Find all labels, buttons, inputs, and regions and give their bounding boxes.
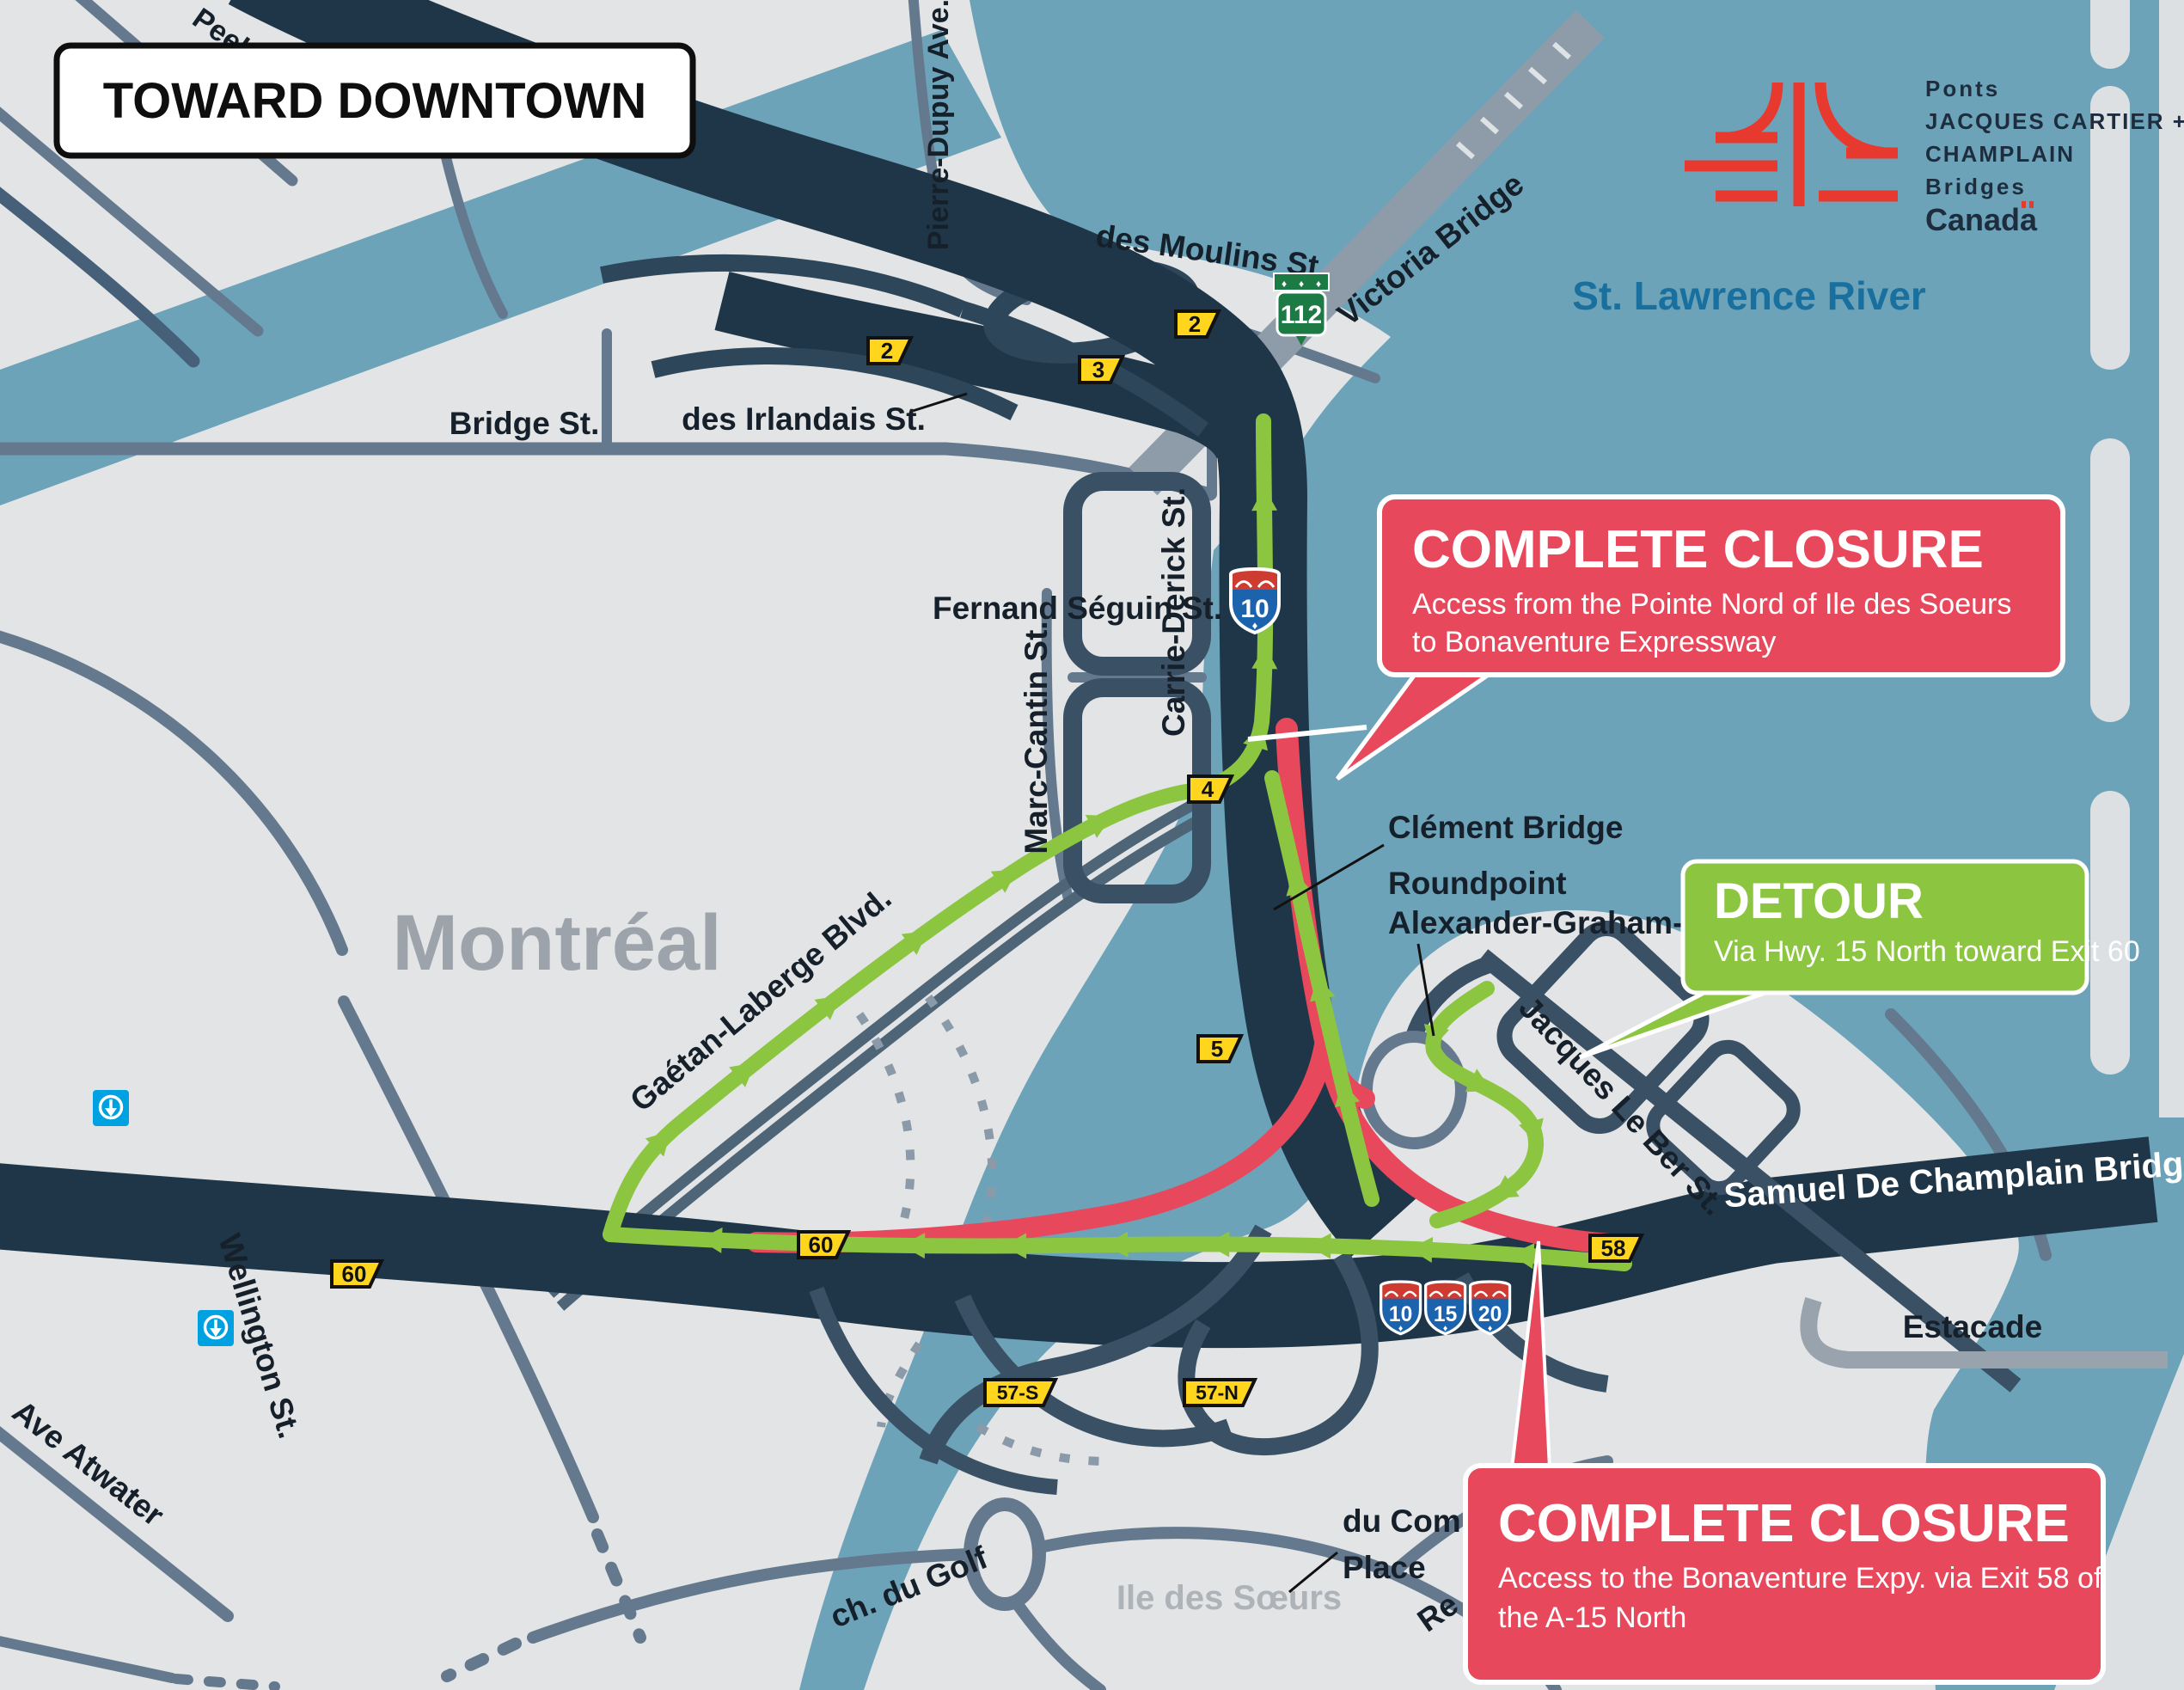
svg-text:to Bonaventure Expressway: to Bonaventure Expressway [1412, 626, 1776, 658]
label-river: St. Lawrence River [1572, 273, 1926, 318]
map-stage: Peel St. Pierre-Dupuy Ave. des Moulins S… [0, 0, 2184, 1690]
label-roundpoint-1: Roundpoint [1388, 866, 1567, 901]
metro-icon [198, 1310, 234, 1346]
shield-a10: 10 ♦ [1380, 1282, 1422, 1334]
svg-text:the A-15 North: the A-15 North [1498, 1601, 1686, 1634]
shield-a15: 15 ♦ [1424, 1282, 1466, 1334]
svg-text:Access from the Pointe Nord of: Access from the Pointe Nord of Ile des S… [1412, 588, 2011, 621]
seaway-pier [2090, 0, 2130, 69]
svg-text:3: 3 [1092, 357, 1104, 383]
seaway-dike-strip [2159, 0, 2184, 1117]
metro-icon [93, 1090, 129, 1126]
label-bridge-st: Bridge St. [450, 406, 600, 441]
svg-text:2: 2 [1189, 311, 1201, 337]
shield-a10-top: 10 ♦ [1229, 569, 1281, 633]
road-atwater [0, 1420, 228, 1616]
svg-text:Access to the Bonaventure Expy: Access to the Bonaventure Expy. via Exit… [1498, 1562, 2102, 1595]
banner-toward-downtown: TOWARD DOWNTOWN [57, 46, 693, 156]
label-carrie-derick: Carrie-Derick St. [1156, 487, 1191, 737]
svg-text:DETOUR: DETOUR [1714, 873, 1924, 929]
road [0, 185, 193, 361]
seaway-pier [2090, 791, 2130, 1075]
svg-text:♦: ♦ [1282, 278, 1287, 290]
logo-bridges: Bridges [1925, 174, 2027, 199]
svg-text:57-S: 57-S [997, 1381, 1039, 1404]
svg-text:♦: ♦ [1299, 278, 1304, 290]
road [0, 1638, 172, 1678]
label-island: Ile des Sœurs [1116, 1579, 1342, 1617]
exit-tab-57n: 57-N [1184, 1380, 1255, 1405]
canada-wordmark: Canada [1925, 202, 2038, 237]
road-golf-dashed [447, 1644, 516, 1676]
svg-text:4: 4 [1202, 776, 1214, 802]
svg-text:57-N: 57-N [1196, 1381, 1239, 1404]
label-estacade: Estacade [1903, 1309, 2043, 1344]
logo-ponts: Ponts [1925, 76, 2000, 101]
label-commerce-1: du Com [1343, 1503, 1461, 1539]
banner-label: TOWARD DOWNTOWN [103, 73, 647, 129]
road [176, 1679, 275, 1687]
label-des-irlandais: des Irlandais St. [682, 401, 926, 437]
svg-text:2: 2 [881, 338, 893, 364]
label-clement: Clément Bridge [1388, 810, 1623, 845]
road-bridge-st [0, 449, 1210, 494]
exit-tab-57s: 57-S [985, 1380, 1055, 1405]
logo-champlain: CHAMPLAIN [1925, 141, 2075, 167]
svg-text:♦: ♦ [1252, 619, 1258, 632]
label-commerce-2: Place [1343, 1550, 1426, 1585]
svg-text:112: 112 [1281, 301, 1322, 329]
traffic-map: Peel St. Pierre-Dupuy Ave. des Moulins S… [0, 0, 2184, 1690]
svg-text:60: 60 [342, 1261, 367, 1287]
svg-text:COMPLETE CLOSURE: COMPLETE CLOSURE [1498, 1494, 2070, 1553]
seaway-pier [2090, 438, 2130, 722]
road [0, 632, 342, 950]
shield-q112: ♦ ♦ ♦ 112 [1274, 273, 1329, 346]
svg-text:Via Hwy. 15 North toward Exit: Via Hwy. 15 North toward Exit 60 [1714, 935, 2140, 968]
svg-text:58: 58 [1601, 1235, 1626, 1261]
label-pierre-dupuy: Pierre-Dupuy Ave. [922, 0, 955, 250]
svg-text:60: 60 [809, 1232, 834, 1258]
exit-tab-60b: 60 [332, 1261, 382, 1287]
shield-a20: 20 ♦ [1469, 1282, 1511, 1334]
svg-text:5: 5 [1211, 1036, 1223, 1062]
label-city: Montréal [392, 899, 721, 987]
svg-text:♦: ♦ [1316, 278, 1321, 290]
logo-jacques-cartier: JACQUES CARTIER + [1925, 108, 2184, 134]
road-wellington-dashed [597, 1534, 640, 1638]
svg-text:COMPLETE CLOSURE: COMPLETE CLOSURE [1412, 520, 1984, 579]
label-marc-cantin: Marc-Cantin St. [1019, 621, 1054, 854]
roundabout-agb [1367, 1037, 1461, 1143]
